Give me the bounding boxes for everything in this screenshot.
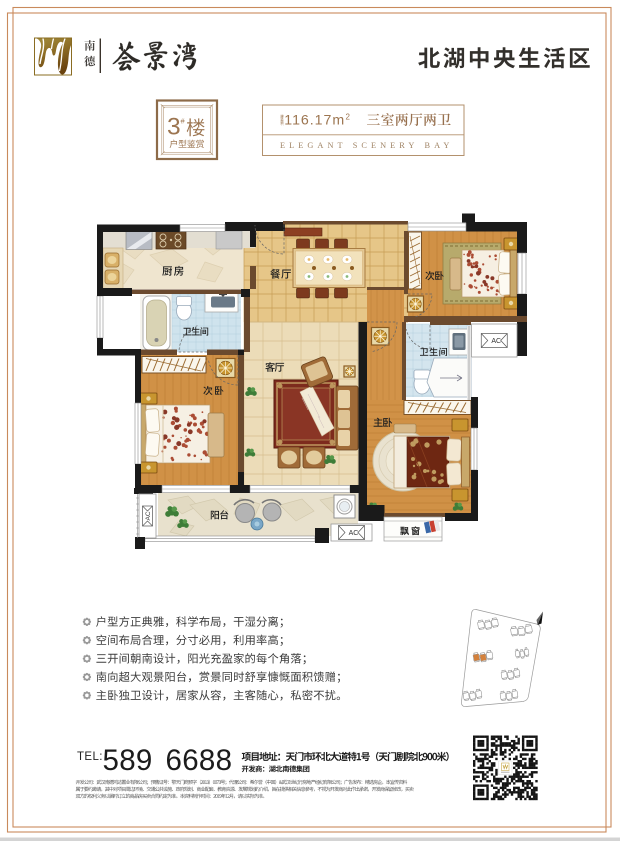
svg-text:AC: AC [145,511,152,520]
svg-text:AC: AC [491,338,501,345]
svg-text:6688: 6688 [166,744,233,777]
svg-text:AC: AC [349,530,359,537]
svg-text:2: 2 [346,113,351,122]
svg-text:ELEGANT SCENERY BAY: ELEGANT SCENERY BAY [280,141,453,150]
svg-text:TEL:: TEL: [77,751,103,763]
svg-text:116.17m: 116.17m [284,113,345,129]
svg-text:589: 589 [103,744,153,777]
svg-text:3: 3 [167,114,181,141]
